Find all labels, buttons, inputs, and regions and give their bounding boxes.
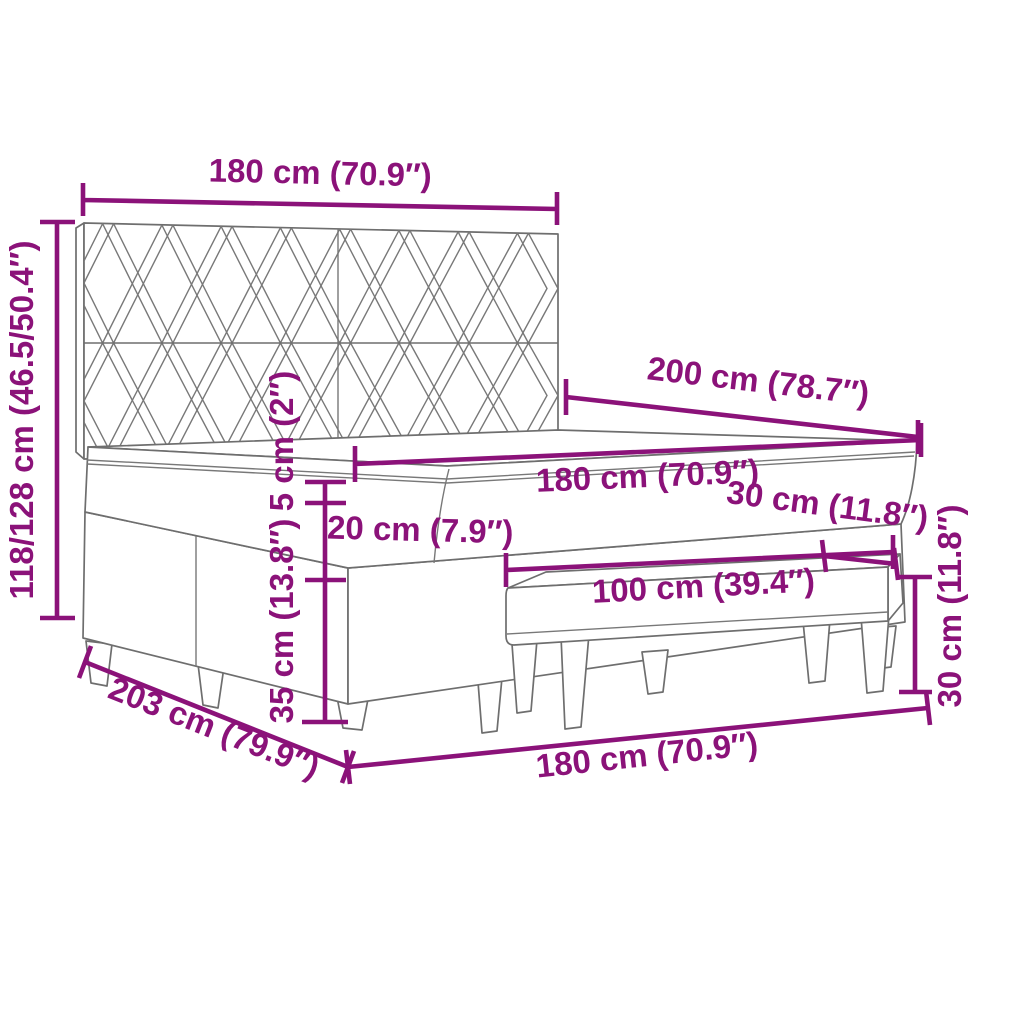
headboard xyxy=(73,223,558,459)
bench-leg xyxy=(642,650,668,694)
dim-label-topper-height: 5 cm (2″) xyxy=(263,371,300,512)
dim-label-bed-width: 180 cm (70.9″) xyxy=(534,725,760,785)
dim-label-headboard-width: 180 cm (70.9″) xyxy=(208,151,432,193)
bed-dimension-diagram: 180 cm (70.9″) 118/128 cm (46.5/50.4″) 5… xyxy=(0,0,1024,1024)
bench-leg xyxy=(561,634,589,729)
dim-label-base-height: 35 cm (13.8″) xyxy=(263,519,300,724)
headboard-side-edge xyxy=(76,223,84,459)
bench-leg xyxy=(861,615,889,693)
diagram-canvas: 180 cm (70.9″) 118/128 cm (46.5/50.4″) 5… xyxy=(0,0,1024,1024)
dim-label-mattress-height: 20 cm (7.9″) xyxy=(327,509,514,551)
dim-label-bed-length: 200 cm (78.7″) xyxy=(645,349,871,411)
dim-label-bed-height: 118/128 cm (46.5/50.4″) xyxy=(3,241,40,600)
bench-leg xyxy=(803,619,830,683)
dim-label-bench-height: 30 cm (11.8″) xyxy=(931,505,968,708)
dim-line-bed-height xyxy=(40,222,75,618)
